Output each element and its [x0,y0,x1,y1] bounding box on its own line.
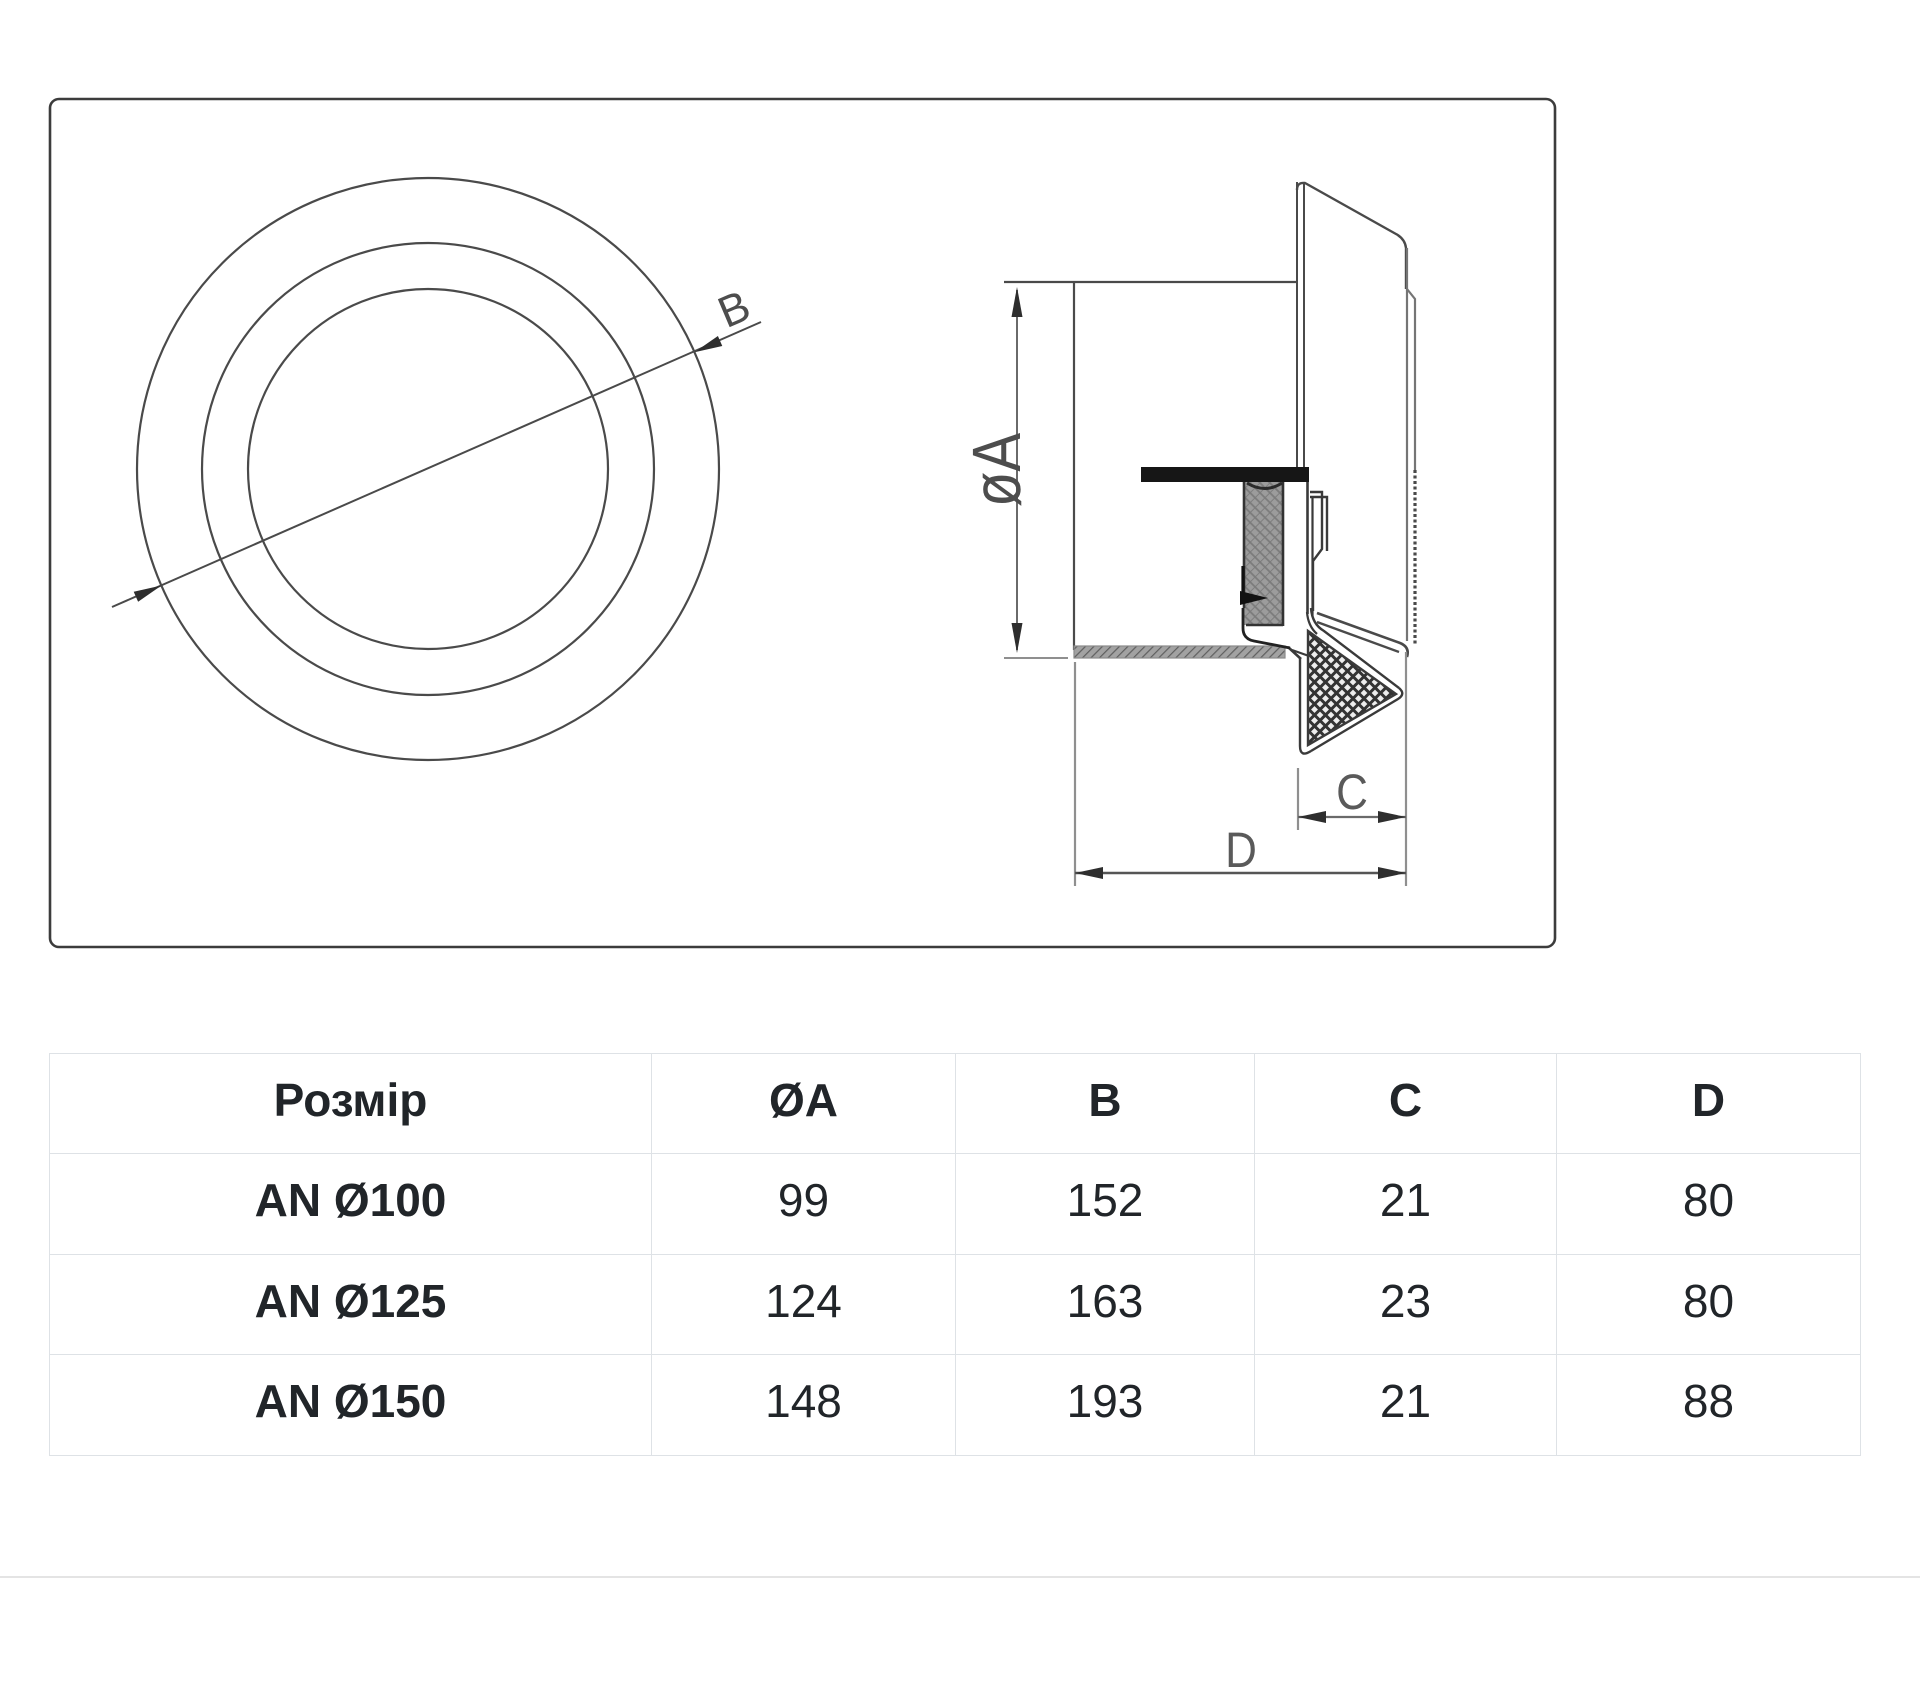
svg-text:C: C [1336,764,1368,820]
svg-text:øA: øA [959,433,1036,507]
svg-text:D: D [1225,822,1257,878]
